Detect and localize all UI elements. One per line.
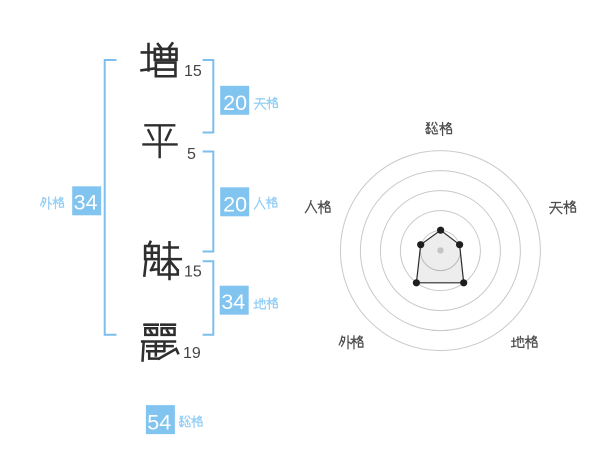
svg-text:34: 34 bbox=[74, 191, 98, 215]
svg-text:20: 20 bbox=[223, 192, 247, 216]
svg-text:19: 19 bbox=[183, 345, 201, 362]
svg-text:54: 54 bbox=[147, 411, 171, 435]
svg-text:34: 34 bbox=[221, 290, 245, 314]
svg-text:5: 5 bbox=[187, 146, 196, 163]
svg-text:15: 15 bbox=[184, 264, 202, 281]
svg-text:20: 20 bbox=[223, 91, 247, 115]
svg-text:15: 15 bbox=[184, 63, 202, 80]
